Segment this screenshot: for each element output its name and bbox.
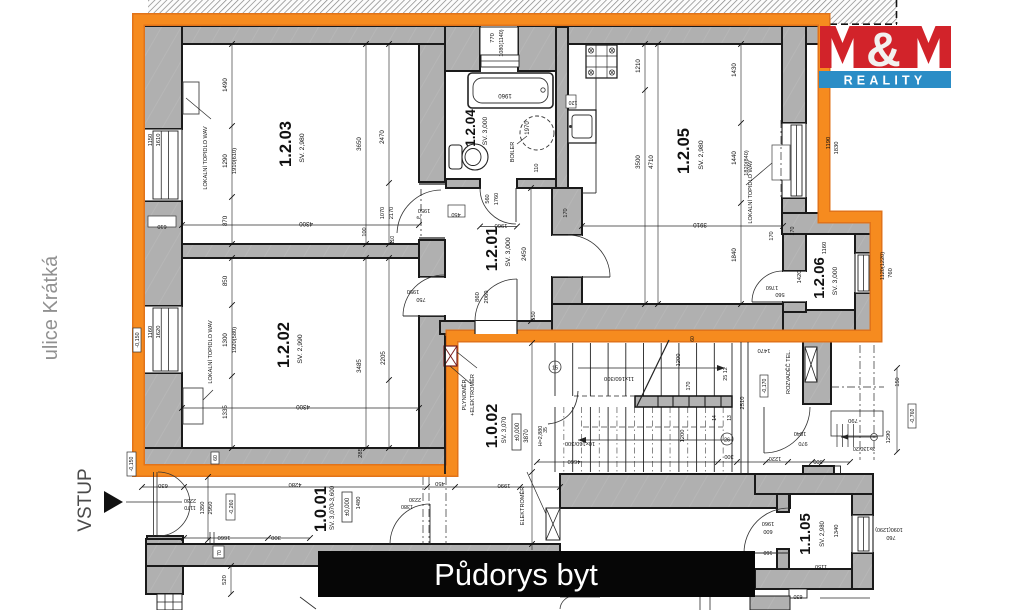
- svg-text:1970: 1970: [525, 121, 531, 135]
- svg-text:2230: 2230: [184, 497, 196, 503]
- svg-text:2450: 2450: [521, 247, 528, 261]
- svg-text:±0,000: ±0,000: [345, 497, 351, 516]
- svg-text:850: 850: [222, 275, 229, 286]
- svg-text:1070: 1070: [380, 207, 386, 219]
- svg-text:35: 35: [543, 427, 549, 433]
- svg-text:500: 500: [813, 458, 822, 464]
- svg-text:1170: 1170: [184, 504, 196, 510]
- svg-text:SV. 3,070: SV. 3,070: [501, 416, 508, 443]
- svg-text:3650: 3650: [356, 137, 363, 151]
- svg-text:170: 170: [769, 231, 775, 240]
- svg-text:1430: 1430: [731, 63, 738, 77]
- svg-text:2950: 2950: [208, 502, 214, 515]
- svg-text:560: 560: [775, 291, 784, 297]
- svg-text:750: 750: [416, 296, 425, 302]
- svg-text:1335: 1335: [222, 405, 229, 419]
- svg-text:1200: 1200: [676, 354, 682, 367]
- svg-text:1420: 1420: [797, 271, 803, 284]
- svg-text:1.2.04: 1.2.04: [463, 109, 478, 147]
- svg-text:600: 600: [763, 528, 772, 534]
- svg-text:70: 70: [217, 550, 223, 556]
- svg-text:4710: 4710: [648, 155, 655, 169]
- svg-text:1.2.01: 1.2.01: [484, 227, 501, 272]
- svg-text:560: 560: [485, 194, 491, 203]
- svg-text:60: 60: [690, 336, 696, 342]
- svg-text:770: 770: [490, 33, 496, 43]
- svg-text:±0,000: ±0,000: [515, 422, 521, 441]
- svg-text:1300: 1300: [222, 333, 229, 347]
- svg-text:1470: 1470: [758, 347, 771, 353]
- svg-text:4300: 4300: [296, 403, 310, 410]
- svg-text:4280: 4280: [289, 481, 302, 487]
- svg-text:1960: 1960: [762, 520, 774, 526]
- svg-text:11x160/300: 11x160/300: [604, 375, 634, 381]
- svg-text:-0,260: -0,260: [229, 500, 235, 515]
- svg-text:REALITY: REALITY: [844, 74, 927, 88]
- svg-text:870: 870: [222, 215, 229, 226]
- svg-text:1990: 1990: [498, 482, 511, 488]
- svg-text:60: 60: [213, 455, 219, 461]
- svg-text:ROZVADĚČ TEL.: ROZVADĚČ TEL.: [784, 350, 792, 394]
- svg-text:1160: 1160: [148, 326, 154, 338]
- svg-text:150: 150: [531, 311, 537, 320]
- svg-text:79: 79: [416, 215, 422, 220]
- svg-text:1.2.06: 1.2.06: [811, 257, 828, 299]
- svg-text:760: 760: [888, 268, 894, 278]
- svg-text:520: 520: [222, 575, 228, 585]
- svg-text:Půdorys byt: Půdorys byt: [434, 557, 598, 592]
- svg-text:1960: 1960: [498, 92, 512, 98]
- svg-text:-0,150: -0,150: [129, 457, 135, 472]
- svg-text:1220: 1220: [769, 455, 781, 461]
- svg-text:1.0.01: 1.0.01: [312, 486, 330, 532]
- svg-text:25 12: 25 12: [723, 367, 729, 381]
- svg-text:1190: 1190: [826, 137, 832, 149]
- svg-text:2510: 2510: [740, 397, 746, 410]
- svg-text:1760: 1760: [766, 284, 778, 290]
- svg-text:1.0.02: 1.0.02: [484, 404, 501, 449]
- svg-text:SV. 3,000: SV. 3,000: [505, 237, 512, 266]
- svg-text:1950: 1950: [418, 207, 430, 213]
- svg-text:100: 100: [362, 227, 368, 236]
- svg-text:170: 170: [686, 382, 692, 391]
- svg-text:4300: 4300: [299, 220, 313, 227]
- svg-text:1160: 1160: [822, 242, 828, 254]
- svg-text:LOKALNÍ TOPIDLO WAV: LOKALNÍ TOPIDLO WAV: [747, 160, 754, 223]
- svg-text:1.2.05: 1.2.05: [675, 128, 693, 174]
- svg-text:1090(1290): 1090(1290): [875, 526, 903, 532]
- svg-text:150: 150: [895, 377, 901, 386]
- svg-text:160: 160: [764, 549, 773, 555]
- svg-text:SV. 2,980: SV. 2,980: [698, 140, 705, 169]
- svg-text:ELEKTROMĚR: ELEKTROMĚR: [518, 487, 526, 526]
- svg-text:15: 15: [552, 366, 558, 372]
- svg-text:170: 170: [563, 208, 569, 217]
- svg-text:SV. 2,990: SV. 2,990: [297, 334, 304, 363]
- svg-text:3485: 3485: [356, 359, 363, 373]
- svg-text:1120(1220): 1120(1220): [880, 252, 886, 280]
- svg-text:450: 450: [435, 480, 445, 486]
- svg-text:1150: 1150: [148, 134, 154, 146]
- svg-text:1910(610): 1910(610): [232, 148, 238, 174]
- svg-text:VSTUP: VSTUP: [75, 468, 96, 531]
- svg-text:2470: 2470: [379, 130, 386, 144]
- svg-text:630: 630: [794, 593, 803, 599]
- svg-text:300: 300: [724, 453, 733, 459]
- svg-text:14: 14: [712, 415, 718, 421]
- svg-text:1950: 1950: [407, 288, 419, 294]
- svg-text:2170: 2170: [389, 207, 395, 219]
- svg-text:PLYNOMĚR: PLYNOMĚR: [460, 380, 468, 411]
- svg-text:SV. 2,980: SV. 2,980: [820, 520, 826, 546]
- svg-text:3910: 3910: [693, 221, 707, 228]
- svg-text:&: &: [866, 24, 901, 77]
- svg-text:1660: 1660: [218, 534, 231, 540]
- svg-text:1.2.03: 1.2.03: [277, 121, 295, 167]
- svg-text:1620: 1620: [156, 326, 162, 339]
- svg-text:10x160/300: 10x160/300: [565, 440, 595, 446]
- svg-text:1480: 1480: [356, 497, 362, 510]
- svg-text:170: 170: [790, 227, 796, 236]
- svg-text:860: 860: [475, 292, 481, 302]
- svg-text:LOKALNÍ TOPIDLO WAV: LOKALNÍ TOPIDLO WAV: [207, 320, 214, 383]
- svg-text:13: 13: [727, 415, 733, 421]
- svg-text:+ELEKTROMĚR: +ELEKTROMĚR: [468, 374, 476, 416]
- svg-text:3x130/20: 3x130/20: [853, 445, 875, 451]
- svg-text:26: 26: [724, 438, 730, 444]
- svg-text:110: 110: [534, 164, 540, 173]
- svg-text:-0,150: -0,150: [135, 332, 141, 347]
- svg-text:285: 285: [358, 448, 364, 458]
- svg-text:120: 120: [569, 99, 578, 105]
- svg-text:BOILER: BOILER: [510, 142, 516, 163]
- svg-text:1290: 1290: [886, 431, 892, 444]
- svg-text:SV. 3,000: SV. 3,000: [832, 266, 839, 295]
- svg-text:LOKALNÍ TOPIDLO WAV: LOKALNÍ TOPIDLO WAV: [202, 126, 209, 189]
- svg-text:1830: 1830: [834, 142, 840, 155]
- svg-text:SV. 2,980: SV. 2,980: [299, 133, 306, 162]
- svg-text:110: 110: [390, 236, 396, 244]
- svg-text:1840: 1840: [794, 430, 806, 436]
- svg-text:4660: 4660: [568, 458, 581, 464]
- svg-text:1350: 1350: [200, 502, 206, 515]
- svg-text:1440: 1440: [731, 151, 738, 165]
- svg-text:1340: 1340: [834, 525, 840, 538]
- svg-text:450: 450: [451, 211, 460, 217]
- svg-text:2230: 2230: [409, 496, 421, 502]
- svg-text:1610: 1610: [156, 134, 162, 147]
- svg-text:2205: 2205: [380, 351, 387, 365]
- svg-text:300: 300: [271, 534, 281, 540]
- svg-text:-0,170: -0,170: [762, 379, 768, 394]
- svg-text:1490: 1490: [222, 78, 229, 92]
- svg-text:1080(1140): 1080(1140): [499, 29, 505, 56]
- svg-text:ulice Krátká: ulice Krátká: [40, 255, 62, 360]
- svg-text:3870: 3870: [524, 429, 530, 443]
- svg-text:1150: 1150: [815, 563, 827, 569]
- svg-text:1760: 1760: [494, 193, 500, 205]
- svg-text:SV. 3,000: SV. 3,000: [482, 116, 489, 145]
- svg-text:760: 760: [886, 534, 895, 540]
- svg-text:1920(580): 1920(580): [232, 327, 238, 353]
- svg-text:1290: 1290: [222, 154, 229, 168]
- svg-text:610: 610: [157, 223, 166, 229]
- svg-text:1210: 1210: [635, 59, 642, 73]
- svg-text:1.1.05: 1.1.05: [797, 513, 814, 555]
- svg-text:SV. 3,070-3,600: SV. 3,070-3,600: [329, 485, 336, 530]
- svg-text:970: 970: [798, 440, 807, 446]
- svg-text:1.2.02: 1.2.02: [275, 322, 293, 368]
- svg-text:1380: 1380: [401, 503, 413, 509]
- svg-text:-0,760: -0,760: [910, 409, 916, 424]
- svg-text:2060: 2060: [484, 291, 490, 304]
- svg-text:630: 630: [158, 482, 168, 488]
- svg-text:1200: 1200: [680, 430, 686, 443]
- svg-text:790: 790: [848, 417, 858, 423]
- svg-text:1840: 1840: [731, 248, 738, 262]
- svg-text:3500: 3500: [635, 155, 642, 169]
